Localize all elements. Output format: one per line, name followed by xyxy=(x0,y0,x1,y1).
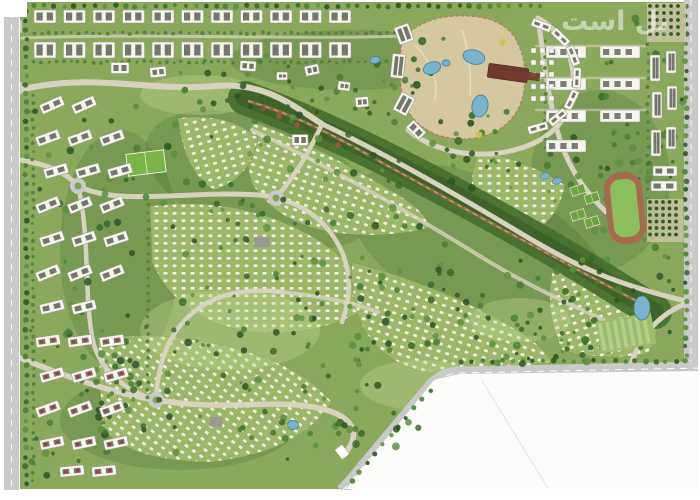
building xyxy=(123,42,145,58)
building xyxy=(93,10,115,23)
building xyxy=(329,42,351,58)
building xyxy=(667,86,677,110)
building xyxy=(546,140,586,152)
building xyxy=(355,96,369,107)
terrace-unit xyxy=(540,84,545,89)
terrace-unit xyxy=(549,60,554,65)
building xyxy=(337,81,350,92)
terrace-unit xyxy=(540,60,545,65)
terrace-unit xyxy=(531,48,536,53)
terrace-unit xyxy=(540,48,545,53)
building xyxy=(270,10,292,23)
building xyxy=(653,166,677,176)
building xyxy=(64,10,86,23)
building xyxy=(152,42,174,58)
building xyxy=(390,53,405,78)
building xyxy=(152,10,174,23)
building xyxy=(292,135,308,146)
terrace-unit xyxy=(540,96,545,101)
pond xyxy=(442,60,450,66)
internal-road xyxy=(22,36,402,38)
terrace-unit xyxy=(549,96,554,101)
terrace-unit xyxy=(549,84,554,89)
masterplan-svg[interactable]: بل است xyxy=(0,0,700,500)
building xyxy=(241,10,263,23)
building xyxy=(92,465,117,477)
pond xyxy=(288,421,299,430)
building xyxy=(60,465,85,477)
building xyxy=(600,46,640,58)
building xyxy=(255,237,270,247)
terrace-unit xyxy=(531,60,536,65)
terrace-unit xyxy=(549,72,554,77)
building xyxy=(34,10,56,23)
building xyxy=(300,42,322,58)
building xyxy=(123,10,145,23)
building xyxy=(650,55,660,81)
building xyxy=(241,42,263,58)
building xyxy=(211,10,233,23)
pond xyxy=(634,296,650,320)
building xyxy=(573,68,582,88)
building xyxy=(150,66,167,78)
building xyxy=(93,42,115,58)
terrace-unit xyxy=(540,72,545,77)
orchard-grid xyxy=(647,199,684,242)
building xyxy=(666,127,676,149)
building xyxy=(652,92,662,118)
building xyxy=(651,130,661,156)
building xyxy=(111,63,129,74)
masterplan-map[interactable]: بل است xyxy=(0,0,700,500)
building xyxy=(240,60,257,71)
building xyxy=(211,42,233,58)
building xyxy=(210,418,222,427)
building xyxy=(600,110,640,122)
building xyxy=(651,181,677,191)
building xyxy=(300,10,322,23)
building xyxy=(666,51,676,73)
building xyxy=(600,78,640,90)
building xyxy=(329,10,351,23)
terrace-unit xyxy=(531,84,536,89)
building xyxy=(64,42,86,58)
building xyxy=(277,72,288,80)
building xyxy=(182,10,204,23)
watermark-text: بل است xyxy=(561,6,669,37)
building xyxy=(34,42,56,58)
terrace-unit xyxy=(549,48,554,53)
terrace-unit xyxy=(531,96,536,101)
building xyxy=(270,42,292,58)
building xyxy=(182,42,204,58)
